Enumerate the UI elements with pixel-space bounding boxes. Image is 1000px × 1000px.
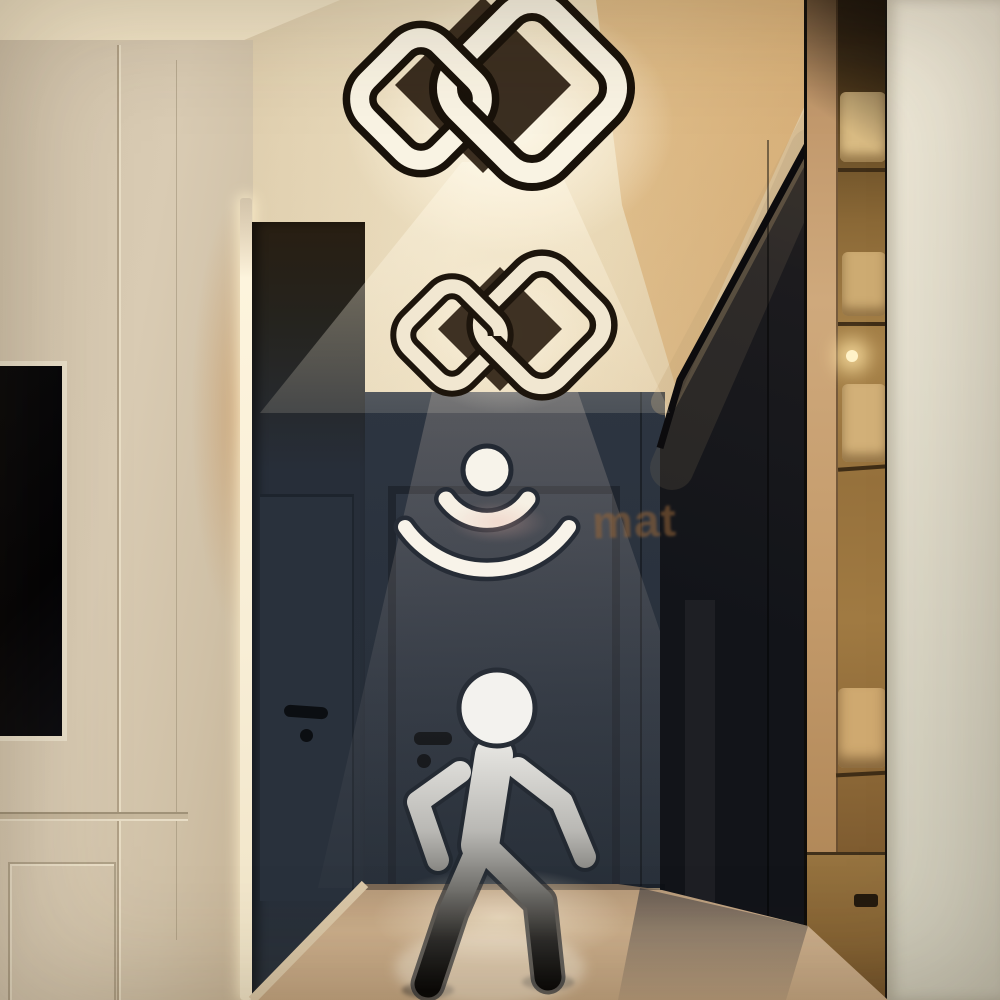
watermark-tint — [428, 492, 568, 552]
watermark-text: mat — [591, 493, 678, 550]
walking-person-icon — [380, 650, 620, 1000]
ceiling-lamp-rear — [380, 245, 630, 425]
hallway-photo: mat — [0, 0, 1000, 1000]
ceiling-lamp-front — [320, 0, 680, 250]
